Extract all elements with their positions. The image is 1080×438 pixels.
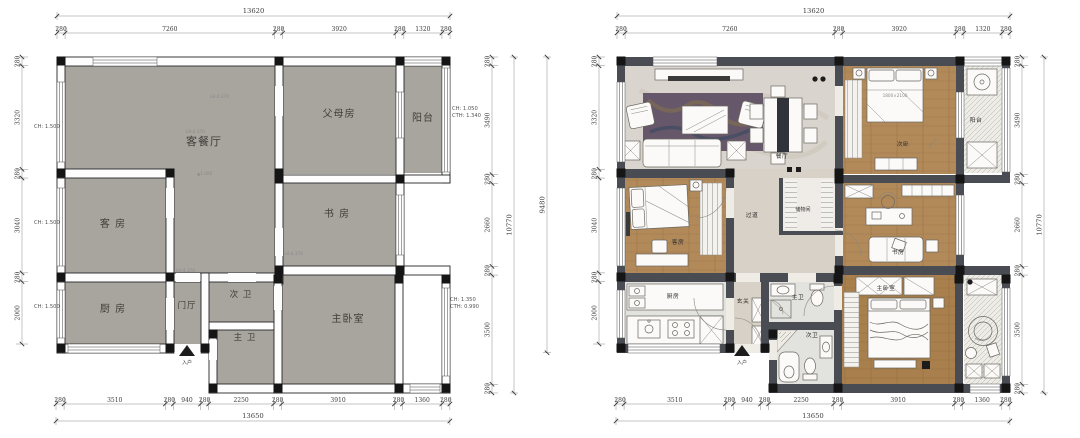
column (726, 273, 735, 282)
armchair-left (626, 102, 655, 130)
room-floor (282, 275, 395, 384)
window-annotation: CTH: 1.340 (452, 113, 481, 119)
column (57, 273, 66, 282)
column (956, 266, 965, 275)
wall (275, 266, 450, 275)
bench (874, 360, 916, 368)
dim-label: 7260 (722, 26, 737, 33)
dim-label: 280 (1015, 383, 1022, 395)
dim-label: 3320 (15, 110, 22, 125)
column (834, 275, 843, 284)
column (442, 57, 451, 66)
column (275, 175, 284, 184)
window (404, 57, 442, 66)
window (1002, 288, 1010, 376)
door-opening (834, 286, 842, 310)
column (726, 169, 735, 178)
plant (967, 279, 972, 284)
door-opening (275, 228, 283, 256)
wall (964, 175, 1010, 183)
column (769, 384, 778, 393)
column (201, 344, 210, 353)
dim-label: 280 (485, 265, 492, 277)
window (617, 82, 625, 162)
door-opening (726, 298, 734, 330)
room-floor (166, 169, 275, 282)
dim-label: 280 (54, 397, 66, 404)
column (1002, 57, 1011, 66)
desk (866, 208, 912, 225)
wardrobe (700, 183, 722, 255)
column (57, 57, 66, 66)
room-label-master-bath: 主卫 (792, 293, 805, 301)
dim-label: 940 (741, 397, 753, 404)
wall (275, 175, 404, 183)
column (617, 169, 626, 178)
room-label-bath2: 次 卫 (230, 289, 253, 300)
window (68, 344, 160, 353)
window (57, 188, 65, 266)
column (396, 266, 405, 275)
dim-label: 3510 (107, 397, 122, 404)
dim-label: 280 (272, 397, 284, 404)
dim-total-label: 13650 (802, 412, 824, 420)
wall (835, 175, 964, 183)
tv (626, 212, 630, 236)
wall (835, 266, 1010, 275)
column (835, 266, 844, 275)
window (442, 68, 450, 172)
decor-dot (820, 76, 825, 81)
dim-label: 1360 (975, 397, 990, 404)
window (956, 92, 964, 138)
room-label-foyer: 门厅 (177, 300, 196, 311)
column (209, 384, 218, 393)
window (396, 92, 404, 138)
stool (787, 167, 792, 172)
tv-console (655, 69, 743, 81)
dim-label: 1360 (415, 397, 430, 404)
door-opening (835, 86, 843, 116)
dim-total-label: 10770 (506, 214, 514, 236)
dim-label: 3490 (485, 112, 492, 127)
door-opening (788, 273, 816, 282)
decor-item (922, 361, 930, 369)
dim-label: 1320 (415, 26, 430, 33)
dim-label: 280 (15, 168, 22, 180)
window (628, 344, 720, 353)
dim-label: 280 (164, 397, 176, 404)
dim-label: 280 (1015, 173, 1022, 185)
storage-shelf-right (821, 180, 833, 229)
wardrobe-side (844, 292, 859, 367)
dim-total-label: 13620 (243, 7, 265, 15)
door-opening (726, 188, 734, 218)
column (442, 275, 451, 284)
room-label-balcony: 阳台 (412, 111, 434, 124)
dim-label: 3490 (1015, 112, 1022, 127)
room-label-entrance: 入户 (737, 359, 747, 366)
wall (395, 275, 403, 393)
dim-label: 280 (954, 26, 966, 33)
wall (726, 169, 734, 282)
interior-annotation: LH:4.370 (176, 268, 195, 273)
door-opening (209, 340, 217, 360)
wall (617, 273, 734, 282)
room-label-master: 主卧室 (332, 312, 365, 325)
dim-label: 280 (953, 397, 965, 404)
window (442, 288, 450, 376)
door-opening (274, 286, 282, 310)
column (769, 330, 778, 339)
desk (636, 254, 688, 266)
dim-label: 1320 (975, 26, 990, 33)
dim-label: 280 (394, 26, 406, 33)
dim-label: 2660 (485, 217, 492, 232)
bed (868, 298, 930, 358)
nightstand (690, 180, 702, 191)
dim-label: 2660 (1015, 217, 1022, 232)
wall (769, 322, 834, 330)
dim-label: 280 (55, 26, 67, 33)
vanity (820, 336, 832, 358)
dim-label: 280 (759, 397, 771, 404)
column (57, 169, 66, 178)
window-annotation: CH: 1.500 (34, 124, 60, 130)
dim-label: 3510 (667, 397, 682, 404)
window (956, 195, 964, 255)
door-opening (769, 340, 777, 360)
window (410, 384, 440, 393)
dim-label: 280 (614, 397, 626, 404)
column (955, 384, 964, 393)
column (395, 384, 404, 393)
bed-size-label: 1800×2100 (883, 93, 908, 98)
dim-label: 280 (615, 26, 627, 33)
dim-label: 3910 (890, 397, 905, 404)
room-label-study: 书房 (892, 248, 905, 256)
dim-label: 280 (393, 397, 405, 404)
toilet (811, 290, 823, 306)
door-opening (166, 188, 174, 218)
column (275, 266, 284, 275)
dim-label: 2250 (793, 397, 808, 404)
dim-label: 2000 (592, 305, 599, 320)
small-table (966, 348, 977, 359)
wall (769, 384, 963, 393)
door-opening (275, 86, 283, 116)
room-label-bath1: 主 卫 (234, 332, 257, 343)
window (964, 57, 1002, 66)
column (396, 175, 405, 184)
room-label-entrance: 入户 (182, 359, 192, 366)
door-opening (228, 273, 256, 282)
dim-label: 280 (15, 271, 22, 283)
wall (209, 322, 274, 330)
side-table-right (727, 141, 746, 160)
dim-label: 3910 (330, 397, 345, 404)
interior-annotation: LH:4.370 (284, 251, 303, 256)
dim-label: 7260 (162, 26, 177, 33)
window-annotation: CH: 1.500 (34, 304, 60, 310)
dim-label: 280 (485, 383, 492, 395)
room-label-guest: 客房 (672, 238, 685, 246)
toilet-tank (810, 284, 824, 290)
dim-label: 280 (1015, 265, 1022, 277)
washer (967, 69, 997, 95)
dim-label: 280 (15, 55, 22, 67)
column (57, 344, 66, 353)
room-label-study: 书 房 (324, 207, 350, 220)
sofa (643, 139, 721, 167)
column (275, 57, 284, 66)
column (396, 57, 405, 66)
dim-total-label: 9480 (539, 196, 547, 213)
column (956, 175, 965, 184)
dim-label: 280 (440, 26, 452, 33)
dim-label: 280 (832, 397, 844, 404)
column (274, 275, 283, 284)
room-label-kitchen: 厨 房 (100, 302, 126, 315)
room-label-guest: 客 房 (100, 217, 126, 230)
window (93, 57, 157, 66)
column (617, 273, 626, 282)
column (726, 344, 735, 353)
column (955, 275, 964, 284)
room-label-balcony-top: 阳台 (970, 116, 983, 124)
room-floor (65, 66, 275, 169)
column (1002, 275, 1011, 284)
room-label-kitchen: 厨房 (667, 292, 680, 300)
column (835, 175, 844, 184)
wall (57, 273, 174, 282)
dim-label: 280 (1015, 55, 1022, 67)
toilet (805, 358, 816, 374)
column (834, 384, 843, 393)
wall (209, 384, 403, 393)
door-opening (736, 273, 760, 282)
window-annotation: CH: 1.050 (452, 106, 478, 112)
nightstand (933, 298, 944, 308)
window (970, 384, 1000, 393)
stool (796, 167, 801, 172)
window (617, 188, 625, 266)
plans-svg: 1362028072602803920280132028028035102809… (0, 0, 1080, 438)
dim-label: 3040 (15, 218, 22, 233)
window-annotation: CTH: 0.990 (450, 304, 479, 310)
wall (617, 169, 734, 178)
window (57, 82, 65, 162)
room-label-living-dining: 客餐厅 (186, 134, 222, 148)
dim-label: 2250 (233, 397, 248, 404)
window (396, 195, 404, 255)
dresser (875, 158, 917, 170)
window (617, 290, 625, 338)
column (617, 57, 626, 66)
interior-annotation: LH:4.370 (186, 129, 205, 134)
coffee-table (682, 106, 728, 134)
interior-annotation: ▲1.000 (197, 171, 213, 176)
room-label-entry: 玄关 (737, 297, 750, 305)
dim-label: 280 (1000, 26, 1012, 33)
column (395, 275, 404, 284)
dim-label: 280 (592, 55, 599, 67)
dim-label: 280 (833, 26, 845, 33)
column (761, 344, 770, 353)
room-label-parents: 父母房 (323, 107, 356, 120)
wall (955, 275, 963, 393)
window (1002, 68, 1010, 172)
dim-label: 3500 (1015, 322, 1022, 337)
dim-label: 3920 (332, 26, 347, 33)
dim-label: 280 (592, 168, 599, 180)
bathtub (779, 352, 799, 382)
column (166, 344, 175, 353)
column (274, 384, 283, 393)
room-label-bedroom2: 次卧 (897, 140, 910, 148)
dim-label: 280 (1000, 397, 1012, 404)
chair (652, 240, 667, 253)
wall (57, 169, 174, 178)
toilet-tank (803, 374, 817, 380)
column (442, 384, 451, 393)
dim-label: 3500 (485, 322, 492, 337)
column (166, 169, 175, 178)
window (653, 57, 717, 66)
shelf (902, 185, 954, 196)
dim-label: 3320 (592, 110, 599, 125)
dim-label: 280 (724, 397, 736, 404)
room-label-bath2: 次卫 (806, 331, 819, 339)
column (1002, 384, 1011, 393)
dim-label: 280 (273, 26, 285, 33)
right-plan (617, 57, 1011, 394)
wall (761, 273, 769, 353)
dim-label: 280 (485, 55, 492, 67)
dim-label: 280 (592, 271, 599, 283)
room-label-storage: 储物间 (795, 206, 810, 213)
dim-total-label: 13620 (803, 7, 825, 15)
wall (166, 169, 174, 282)
storage-shelf-left (785, 180, 797, 229)
dim-total-label: 13650 (242, 412, 264, 420)
dim-label: 2000 (15, 305, 22, 320)
side-table (926, 240, 938, 252)
dim-label: 3920 (892, 26, 907, 33)
room-floor (209, 282, 274, 322)
wall (201, 273, 209, 353)
column (956, 57, 965, 66)
column (617, 344, 626, 353)
dim-label: 940 (181, 397, 193, 404)
dim-label: 3040 (592, 218, 599, 233)
window (57, 290, 65, 338)
wall (404, 175, 450, 183)
dim-label: 280 (199, 397, 211, 404)
window-annotation: CH: 1.500 (34, 220, 60, 226)
room-label-hallway: 过道 (746, 211, 759, 219)
interior-annotation: LH:4.370 (210, 94, 229, 99)
room-label-master: 主卧室 (877, 284, 896, 292)
dim-label: 280 (485, 173, 492, 185)
room-floor (283, 66, 396, 174)
room-floor (174, 282, 201, 353)
room-label-dining: 餐厅 (776, 152, 789, 160)
column (209, 330, 218, 339)
window-annotation: CH: 1.350 (450, 297, 476, 303)
decor-dot (812, 76, 817, 81)
door-opening (176, 273, 200, 282)
floor-plans-canvas: 1362028072602803920280132028028035102809… (0, 0, 1080, 438)
dim-label: 280 (440, 397, 452, 404)
wardrobe (845, 80, 862, 158)
dim-total-label: 10770 (1036, 214, 1044, 236)
door-opening (166, 298, 174, 330)
column (166, 273, 175, 282)
column (835, 57, 844, 66)
